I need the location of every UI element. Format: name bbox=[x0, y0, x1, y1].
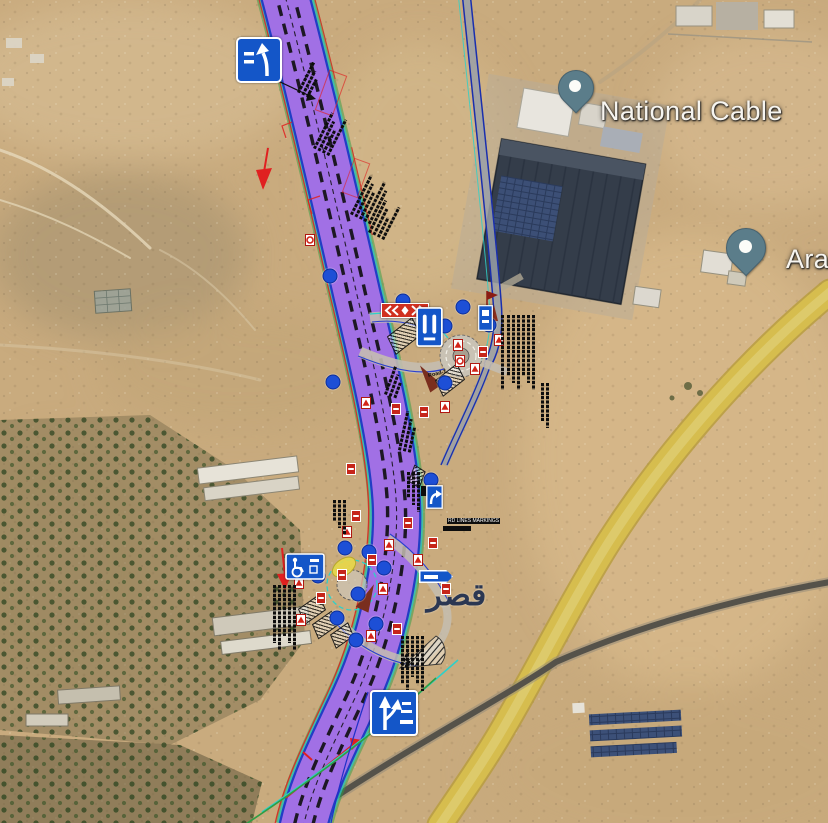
annotation-line bbox=[343, 500, 346, 535]
mini-traffic-sign bbox=[367, 554, 377, 566]
annotation-text-block bbox=[539, 383, 549, 428]
annotation-line bbox=[517, 315, 520, 390]
pin-dot-icon bbox=[739, 240, 752, 253]
utility-marker-dot bbox=[338, 541, 353, 556]
annotation-line bbox=[412, 472, 415, 505]
mini-traffic-sign bbox=[428, 537, 438, 549]
annotation-line bbox=[507, 315, 510, 376]
mini-traffic-sign bbox=[478, 346, 488, 358]
mini-traffic-sign bbox=[403, 517, 413, 529]
annotation-line bbox=[541, 383, 544, 421]
annotation-line bbox=[522, 315, 525, 376]
arabic-place-label: قصر bbox=[427, 578, 487, 613]
utility-marker-dot bbox=[349, 633, 364, 648]
mini-traffic-sign bbox=[470, 363, 480, 375]
sign-text-bar bbox=[424, 575, 438, 579]
mini-traffic-sign bbox=[366, 630, 376, 642]
annotation-line bbox=[293, 585, 296, 650]
annotation-text-block bbox=[499, 315, 535, 390]
map-pin-ara[interactable] bbox=[726, 228, 766, 268]
lane-split-guide-sign bbox=[370, 690, 418, 736]
utility-marker-dot bbox=[351, 587, 366, 602]
mini-traffic-sign bbox=[296, 614, 306, 626]
utility-marker-dot bbox=[438, 376, 453, 391]
utility-marker-dot bbox=[330, 611, 345, 626]
mini-traffic-sign bbox=[455, 355, 465, 367]
narrow-lanes-sign bbox=[416, 307, 443, 347]
mini-traffic-sign bbox=[453, 339, 463, 351]
annotation-line bbox=[273, 585, 276, 643]
mini-traffic-sign bbox=[316, 592, 326, 604]
poi-label-ara: Ara bbox=[786, 244, 828, 275]
direction-arrow-sign bbox=[419, 570, 453, 583]
annotation-line bbox=[404, 660, 411, 668]
annotation-line bbox=[421, 636, 424, 691]
greenhouse bbox=[94, 289, 131, 313]
annotation-bar bbox=[443, 526, 471, 531]
annotation-line bbox=[512, 315, 515, 383]
annotation-line bbox=[546, 383, 549, 428]
annotation-line bbox=[501, 315, 504, 390]
mini-traffic-sign bbox=[440, 401, 450, 413]
annotation-line bbox=[288, 585, 291, 643]
small-blue-regulatory-sign bbox=[478, 305, 493, 331]
lane-shift-guide-sign bbox=[236, 37, 282, 83]
utility-marker-dot bbox=[323, 269, 338, 284]
satellite-map[interactable]: National Cable Ara قصر bbox=[0, 0, 828, 823]
pin-dot-icon bbox=[569, 80, 581, 92]
accessible-parking-sign bbox=[285, 553, 325, 580]
utility-marker-dot bbox=[326, 375, 341, 390]
mini-traffic-sign bbox=[384, 539, 394, 551]
mini-traffic-sign bbox=[413, 554, 423, 566]
annotation-text-block bbox=[331, 500, 346, 535]
utility-marker-dot bbox=[377, 561, 392, 576]
annotation-text-block bbox=[271, 585, 296, 650]
annotation-line bbox=[417, 472, 420, 512]
mini-traffic-sign bbox=[346, 463, 356, 475]
poi-label-national-cable: National Cable bbox=[600, 96, 783, 127]
annotation-line bbox=[283, 585, 286, 636]
mini-traffic-sign bbox=[378, 583, 388, 595]
mini-traffic-sign bbox=[392, 623, 402, 635]
mini-traffic-sign bbox=[391, 403, 401, 415]
mini-traffic-sign bbox=[351, 510, 361, 522]
annotation-line bbox=[416, 636, 419, 684]
annotation-line bbox=[333, 500, 336, 521]
utility-marker-dot bbox=[456, 300, 471, 315]
mini-traffic-sign bbox=[361, 397, 371, 409]
annotation-line bbox=[278, 585, 281, 650]
markings-note-label: RD LINES MARKINGS bbox=[447, 518, 500, 524]
annotation-line bbox=[338, 500, 341, 528]
annotation-line bbox=[532, 315, 535, 390]
annotation-line bbox=[527, 315, 530, 383]
map-pin-national-cable[interactable] bbox=[558, 70, 594, 106]
annotation-line bbox=[407, 472, 410, 498]
mini-guide-arrow-sign bbox=[426, 485, 443, 509]
annotation-text-block bbox=[405, 472, 420, 512]
mini-traffic-sign bbox=[305, 234, 315, 246]
mini-traffic-sign bbox=[441, 583, 451, 595]
mini-traffic-sign bbox=[337, 569, 347, 581]
